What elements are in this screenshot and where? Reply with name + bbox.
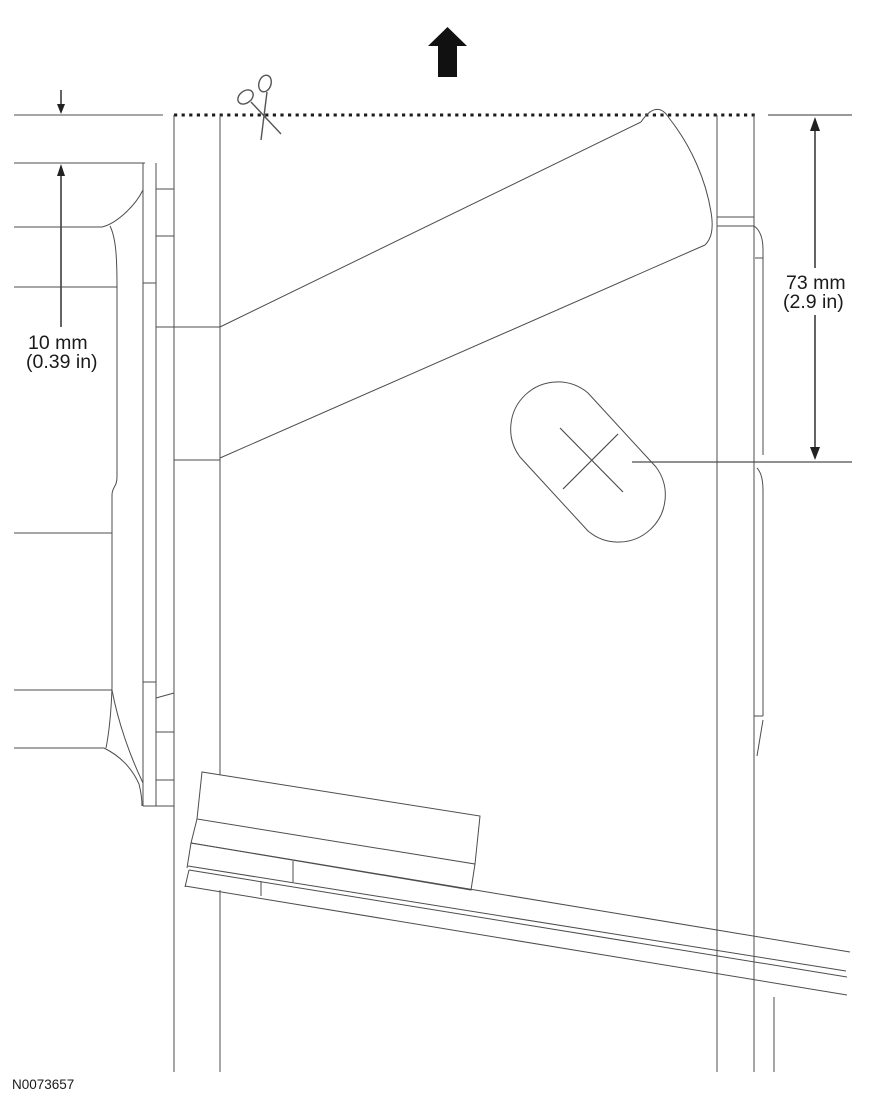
cut-line-diagram: 10 mm (0.39 in) 73 mm (2.9 in) (0, 0, 870, 1096)
service-manual-figure: 10 mm (0.39 in) 73 mm (2.9 in) (0, 0, 870, 1096)
dimension-right-imperial-label: (2.9 in) (783, 291, 844, 313)
figure-background (0, 0, 870, 1096)
figure-id-label: N0073657 (12, 1077, 74, 1092)
dimension-left-imperial-label: (0.39 in) (26, 351, 98, 373)
